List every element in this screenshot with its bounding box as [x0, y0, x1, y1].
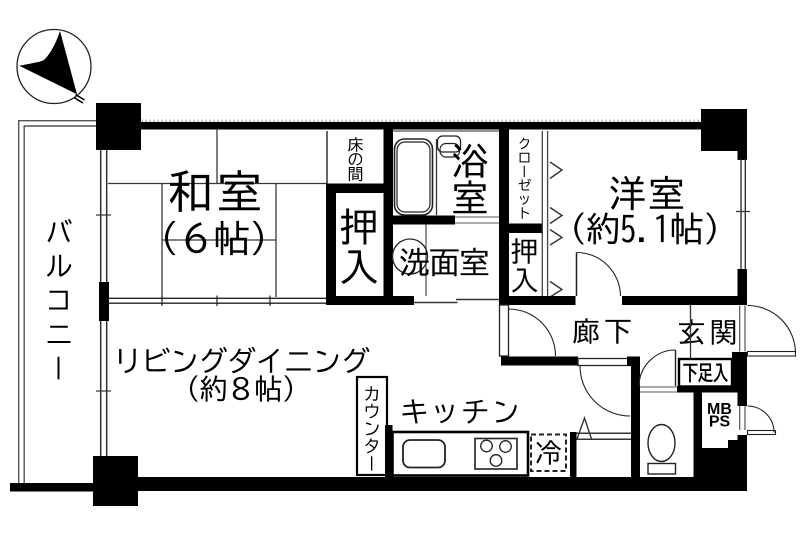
svg-text:PS: PS: [709, 414, 731, 431]
